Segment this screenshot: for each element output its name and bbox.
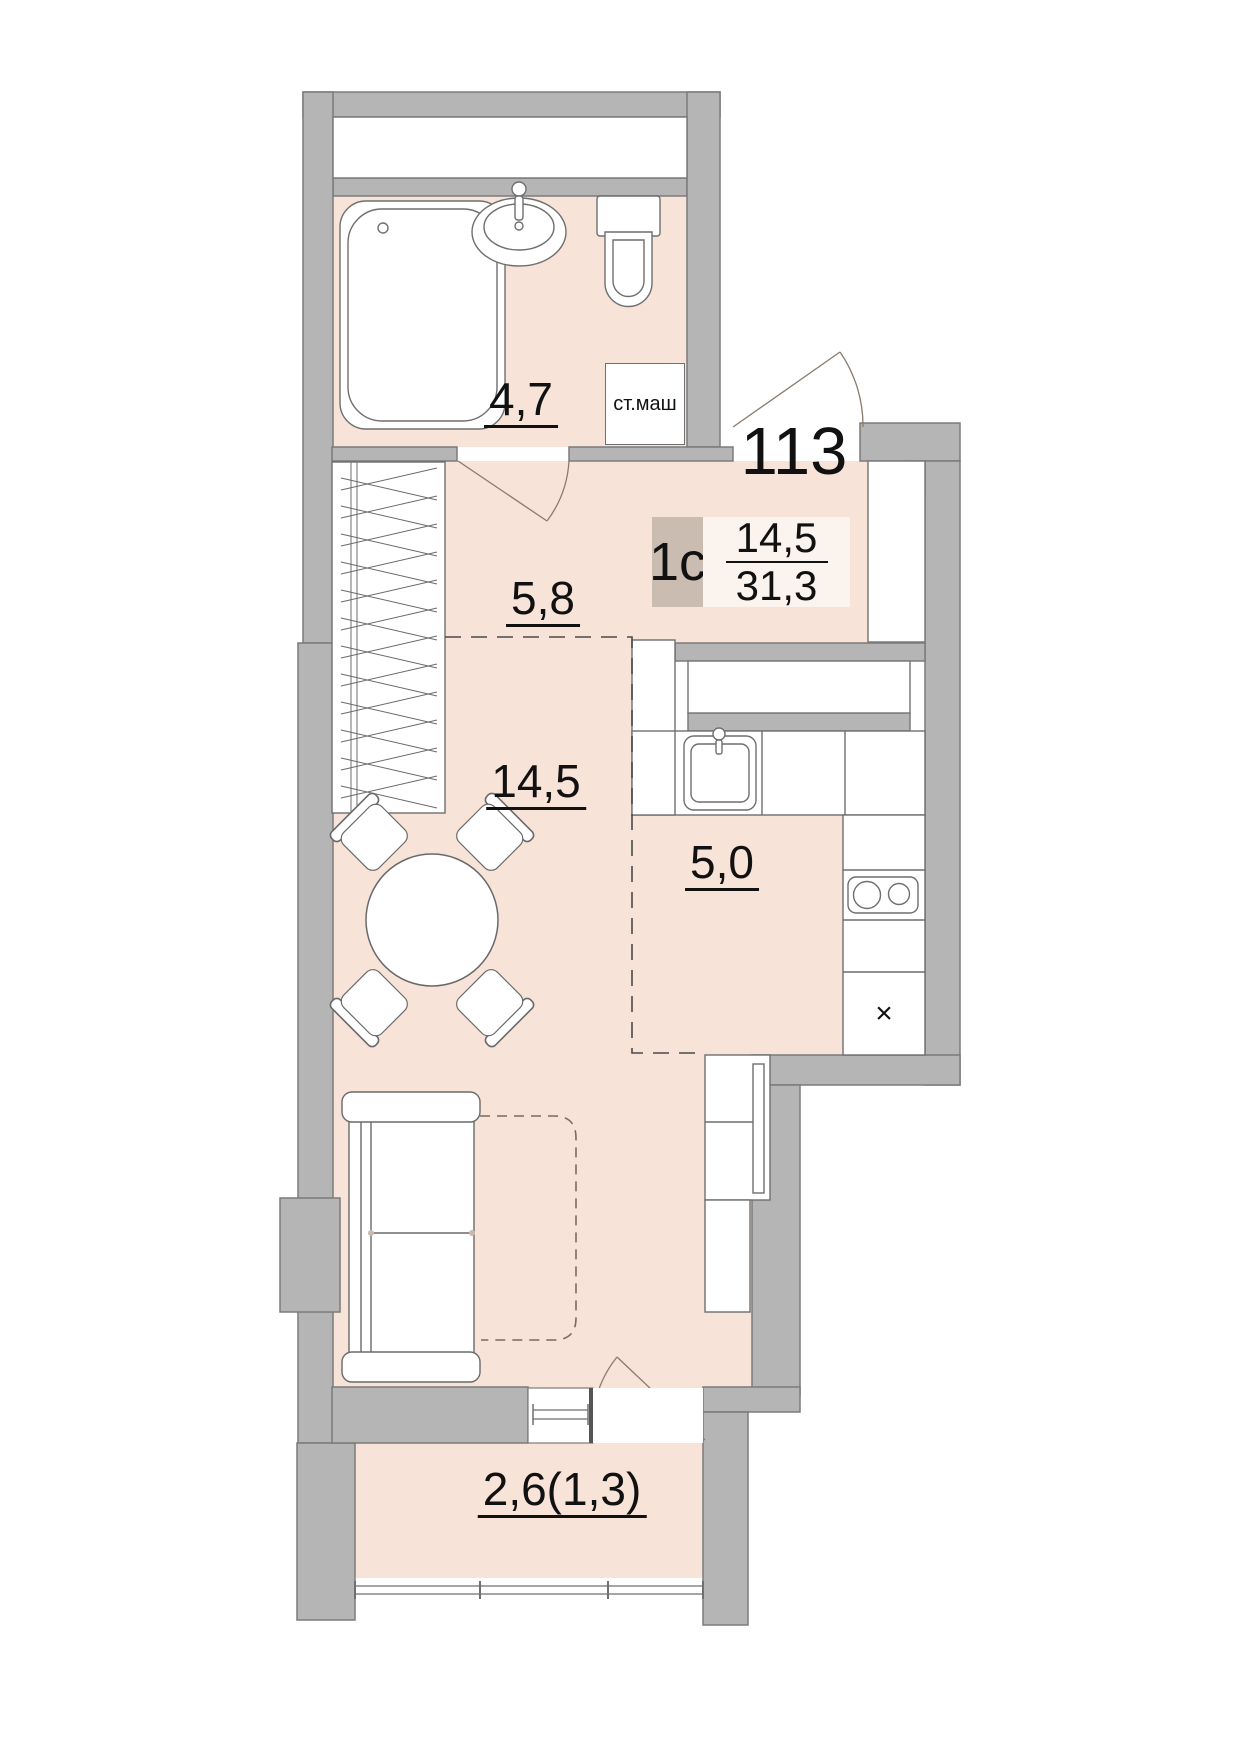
kitchen-sink-icon bbox=[684, 728, 756, 810]
dining-table-icon bbox=[366, 854, 498, 986]
balcony-area-label: 2,6(1,3) bbox=[478, 1466, 647, 1518]
wall-segment bbox=[703, 1387, 800, 1412]
cabinet-panel bbox=[753, 1064, 764, 1193]
area-fraction-box: 14,5 31,3 bbox=[703, 517, 850, 607]
washing-machine-icon: ст.маш bbox=[605, 363, 685, 445]
floor-plan: × bbox=[0, 0, 1240, 1753]
wall-segment bbox=[297, 1443, 355, 1620]
balcony-opening bbox=[528, 1388, 703, 1443]
living-area-label: 14,5 bbox=[486, 758, 586, 810]
fridge-symbol: × bbox=[875, 997, 893, 1030]
balcony-doorway bbox=[593, 1388, 703, 1443]
sofa-icon bbox=[342, 1092, 480, 1382]
wall-segment bbox=[332, 1387, 528, 1443]
washing-machine-label: ст.маш bbox=[613, 393, 676, 416]
total-area-value: 31,3 bbox=[736, 565, 818, 607]
window-icon bbox=[528, 1388, 593, 1443]
wall-segment bbox=[860, 423, 960, 461]
cabinet-icon bbox=[705, 1200, 750, 1312]
stove-icon bbox=[848, 877, 918, 913]
fridge-cross-icon: × bbox=[875, 997, 893, 1030]
kitchen-area-label: 5,0 bbox=[685, 839, 759, 891]
wall-segment bbox=[687, 92, 720, 447]
apartment-type-box: 1с bbox=[652, 517, 703, 607]
hallway-area-label: 5,8 bbox=[506, 575, 580, 627]
balcony-glazing-icon bbox=[355, 1581, 703, 1599]
door-jamb bbox=[589, 1388, 593, 1443]
living-area-value: 14,5 bbox=[736, 517, 818, 559]
wall-segment bbox=[332, 447, 457, 461]
wall-segment bbox=[298, 643, 333, 1443]
wardrobe-icon bbox=[332, 462, 445, 813]
wall-pilaster bbox=[280, 1198, 340, 1312]
toilet-icon bbox=[597, 196, 660, 307]
apartment-type-label: 1с bbox=[649, 531, 706, 593]
bathroom-area-label: 4,7 bbox=[484, 376, 558, 428]
wall-segment bbox=[303, 92, 333, 643]
shaft-niche bbox=[868, 461, 925, 642]
window-niche bbox=[333, 117, 687, 178]
wall-segment bbox=[703, 1412, 748, 1625]
kitchen-counter-row bbox=[632, 731, 925, 815]
wall-segment bbox=[303, 92, 720, 117]
wall-segment bbox=[333, 178, 687, 196]
wall-segment bbox=[675, 643, 925, 661]
wall-segment bbox=[752, 1055, 960, 1085]
vent-shaft bbox=[688, 661, 910, 713]
apartment-number: 113 bbox=[741, 418, 848, 485]
wall-segment bbox=[925, 461, 960, 1085]
wall-segment bbox=[569, 447, 733, 461]
